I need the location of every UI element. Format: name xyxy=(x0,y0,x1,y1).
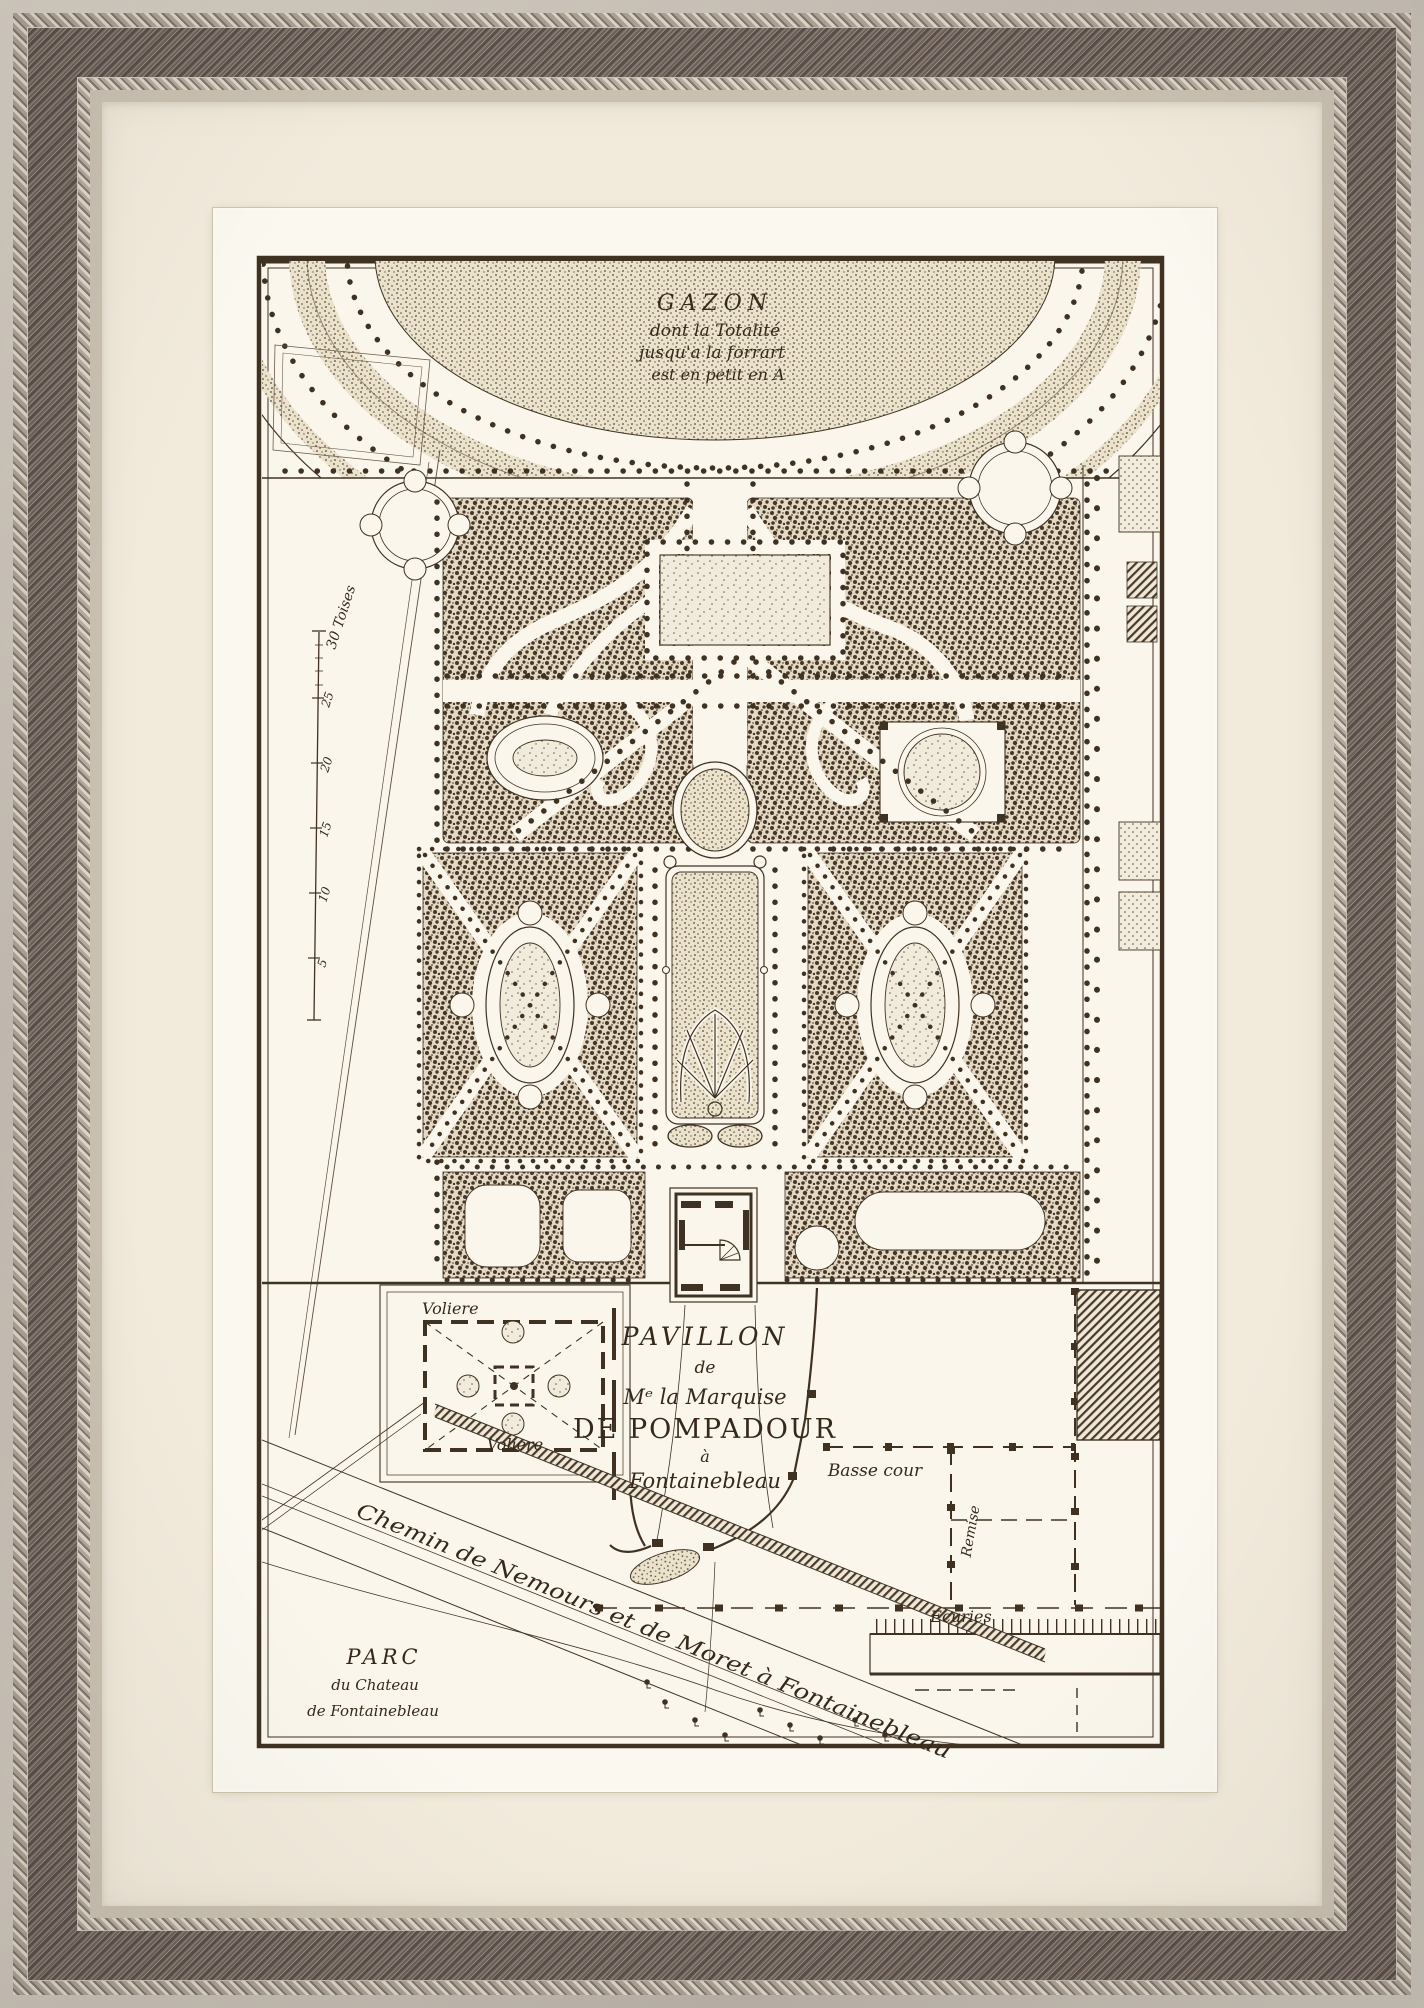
pavilion-building xyxy=(670,1188,757,1302)
title-line1: PAVILLON xyxy=(621,1322,789,1351)
garden-plan-engraving: GAZON dont la Totalité jusqu'a la forrar… xyxy=(215,210,1215,1790)
title-line5: à xyxy=(700,1447,710,1466)
basse-cour-label: Basse cour xyxy=(827,1461,923,1481)
parc-label-line3: de Fontainebleau xyxy=(307,1702,439,1720)
central-basin-panel xyxy=(663,762,768,1124)
gazon-line4: est en petit en A xyxy=(651,365,784,384)
title-line4: DE POMPADOUR xyxy=(573,1414,837,1445)
circle-cabinet xyxy=(880,722,1005,822)
title-line3: Mᵉ la Marquise xyxy=(622,1385,786,1409)
gazon-line2: dont la Totalité xyxy=(650,321,780,341)
saltire-parterre-right xyxy=(804,849,1026,1161)
ecuries-label: Ecuries xyxy=(929,1607,991,1626)
gazon-title: GAZON xyxy=(657,291,773,316)
framed-engraving-photo: GAZON dont la Totalité jusqu'a la forrar… xyxy=(0,0,1424,2008)
title-line6: Fontainebleau xyxy=(628,1469,781,1493)
voliere-bottom-label: Voliere xyxy=(487,1435,544,1454)
voliere-top-label: Voliere xyxy=(422,1299,479,1318)
saltire-parterre-left xyxy=(419,849,641,1161)
gazon-line3: jusqu'a la forrart xyxy=(635,343,785,363)
plan-drawing: GAZON dont la Totalité jusqu'a la forrar… xyxy=(215,210,1215,1763)
parc-label-line2: du Chateau xyxy=(331,1676,419,1694)
parc-label-line1: PARC xyxy=(345,1645,421,1669)
title-line2: de xyxy=(695,1358,716,1378)
print-paper: GAZON dont la Totalité jusqu'a la forrar… xyxy=(215,210,1215,1790)
oval-cabinet xyxy=(487,716,603,800)
